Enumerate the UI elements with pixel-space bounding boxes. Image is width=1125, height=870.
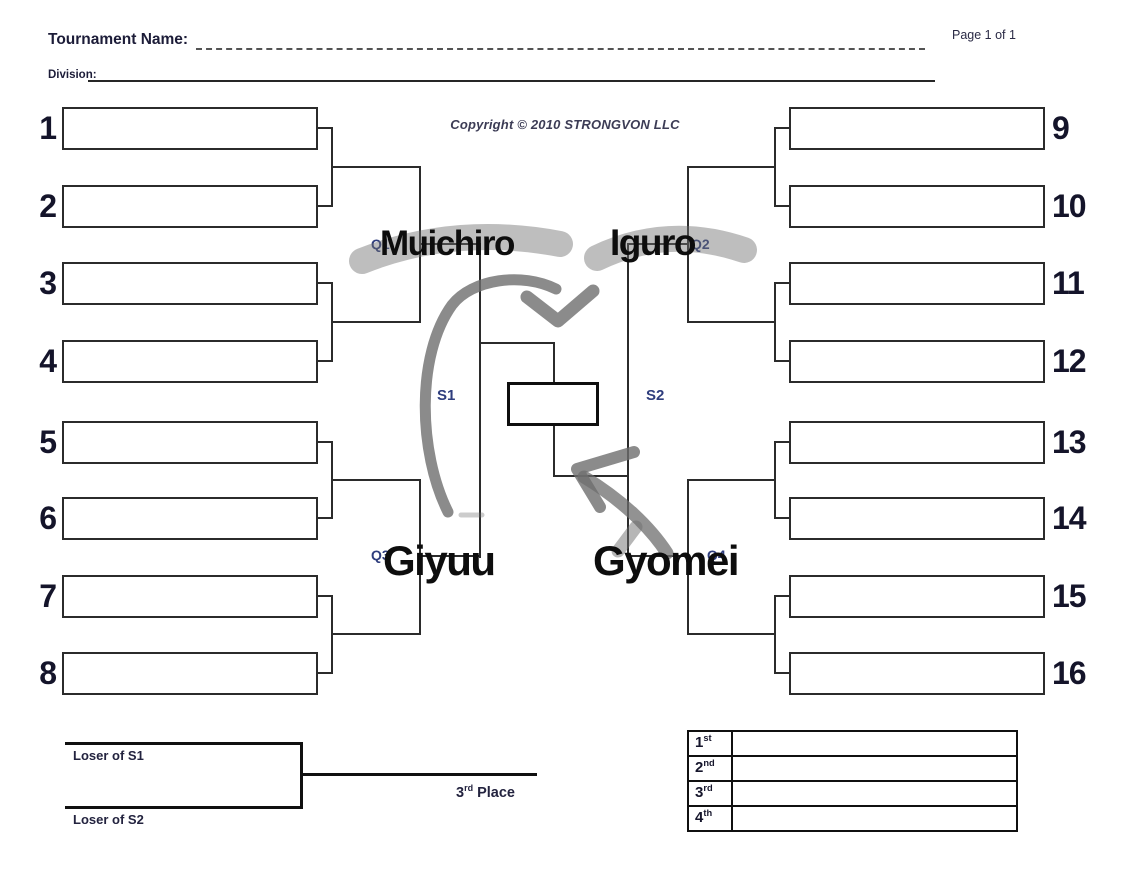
seed-number-4: 4 [26,345,56,377]
seed-number-2: 2 [26,190,56,222]
tournament-name-field[interactable] [196,48,925,50]
seed-number-11: 11 [1052,267,1098,299]
table-row: 4th [689,807,1016,830]
seed-number-13: 13 [1052,426,1098,458]
seed-number-16: 16 [1052,657,1098,689]
table-row: 3rd [689,782,1016,807]
seed-number-7: 7 [26,580,56,612]
entry-box-seed-16[interactable] [789,652,1045,695]
s2-winner-line [553,475,629,477]
bracket-line [774,360,789,362]
third-place-line-top [65,742,303,745]
bracket-line [688,479,776,481]
entry-box-seed-4[interactable] [62,340,318,383]
third-place-label: 3rd Place [456,785,515,801]
seed-number-6: 6 [26,502,56,534]
entry-box-seed-3[interactable] [62,262,318,305]
bracket-line [774,672,789,674]
seed-number-3: 3 [26,267,56,299]
page-indicator: Page 1 of 1 [952,28,1016,42]
result-cell-1st[interactable] [733,732,1016,755]
third-place-winner-line [300,773,537,776]
lower-arrow-head [577,452,634,507]
entry-box-seed-6[interactable] [62,497,318,540]
bracket-line [331,321,420,323]
seed-number-10: 10 [1052,190,1098,222]
copyright-text: Copyright © 2010 STRONGVON LLC [420,117,710,132]
handwritten-q3-winner: Giyuu [383,540,495,582]
result-cell-2nd[interactable] [733,757,1016,780]
place-label-2nd: 2nd [689,757,733,780]
bracket-line [688,166,776,168]
result-cell-4th[interactable] [733,807,1016,830]
division-field[interactable] [88,80,935,82]
bracket-line [688,633,776,635]
bracket-line [331,479,420,481]
table-row: 2nd [689,757,1016,782]
bracket-line [774,282,789,284]
entry-box-seed-10[interactable] [789,185,1045,228]
entry-box-seed-13[interactable] [789,421,1045,464]
bracket-line [774,441,789,443]
handwritten-q4-winner: Gyomei [593,540,738,582]
place-label-1st: 1st [689,732,733,755]
seed-number-14: 14 [1052,502,1098,534]
bracket-line [331,633,420,635]
third-place-line-bottom [65,806,303,809]
seed-number-5: 5 [26,426,56,458]
entry-box-seed-12[interactable] [789,340,1045,383]
bracket-line [774,595,789,597]
final-box[interactable] [507,382,599,426]
entry-box-seed-2[interactable] [62,185,318,228]
bracket-line [774,127,789,129]
table-row: 1st [689,732,1016,757]
seed-number-9: 9 [1052,112,1098,144]
seed-number-12: 12 [1052,345,1098,377]
entry-box-seed-11[interactable] [789,262,1045,305]
s2-winner-line [553,424,555,477]
s2-line [627,244,629,558]
s1-label: S1 [437,388,455,403]
s1-line [479,244,481,558]
loser-of-s2-label: Loser of S2 [73,812,144,827]
entry-box-seed-14[interactable] [789,497,1045,540]
results-table: 1st 2nd 3rd 4th [687,730,1018,832]
entry-box-seed-1[interactable] [62,107,318,150]
place-label-4th: 4th [689,807,733,830]
curved-arrow-head [527,291,593,321]
handwritten-q1-winner: Muichiro [380,226,514,261]
entry-box-seed-15[interactable] [789,575,1045,618]
seed-number-1: 1 [26,112,56,144]
s1-winner-line [479,342,555,344]
s2-label: S2 [646,388,664,403]
entry-box-seed-9[interactable] [789,107,1045,150]
tournament-bracket-sheet: Tournament Name: Page 1 of 1 Division: C… [0,0,1125,870]
entry-box-seed-8[interactable] [62,652,318,695]
handwritten-q2-winner: Iguro [610,224,695,261]
tournament-name-label: Tournament Name: [48,31,188,49]
loser-of-s1-label: Loser of S1 [73,748,144,763]
seed-number-8: 8 [26,657,56,689]
place-label-3rd: 3rd [689,782,733,805]
bracket-line [688,321,776,323]
bracket-line [774,205,789,207]
entry-box-seed-5[interactable] [62,421,318,464]
bracket-line [331,166,420,168]
s1-winner-line [553,342,555,384]
entry-box-seed-7[interactable] [62,575,318,618]
seed-number-15: 15 [1052,580,1098,612]
bracket-line [774,517,789,519]
result-cell-3rd[interactable] [733,782,1016,805]
